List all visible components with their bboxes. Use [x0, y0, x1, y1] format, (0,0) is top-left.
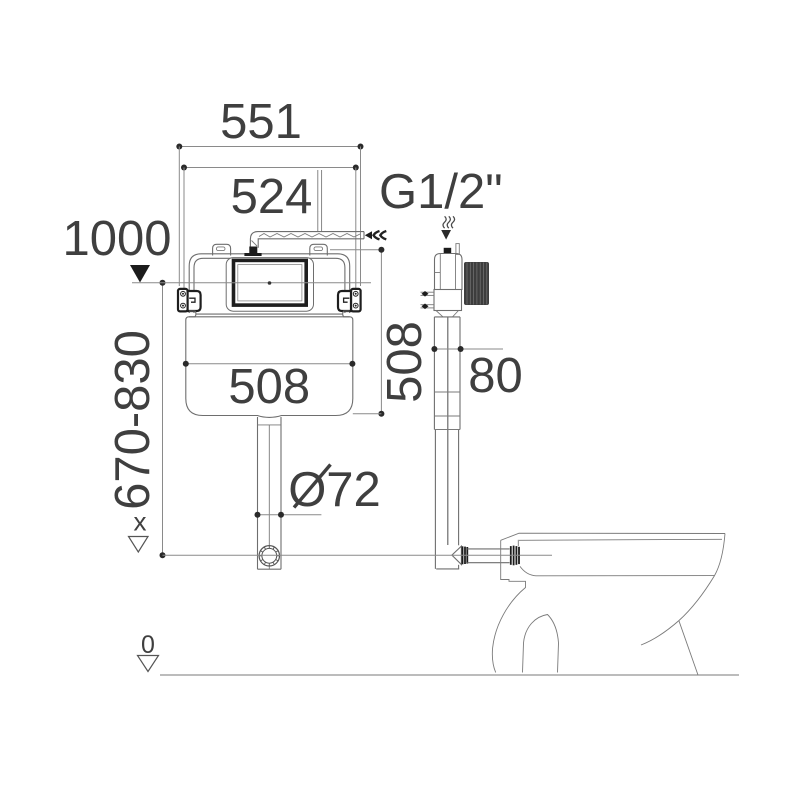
svg-text:80: 80 — [468, 349, 523, 403]
svg-text:551: 551 — [220, 95, 302, 149]
svg-text:1000: 1000 — [62, 212, 171, 266]
svg-text:508: 508 — [228, 360, 310, 414]
svg-text:0: 0 — [141, 631, 155, 659]
svg-text:524: 524 — [231, 170, 313, 224]
svg-text:670-830: 670-830 — [106, 330, 160, 510]
svg-text:O72: O72 — [288, 463, 381, 517]
svg-text:x: x — [134, 507, 147, 537]
svg-text:G1/2": G1/2" — [379, 165, 503, 219]
svg-text:508: 508 — [378, 321, 432, 403]
